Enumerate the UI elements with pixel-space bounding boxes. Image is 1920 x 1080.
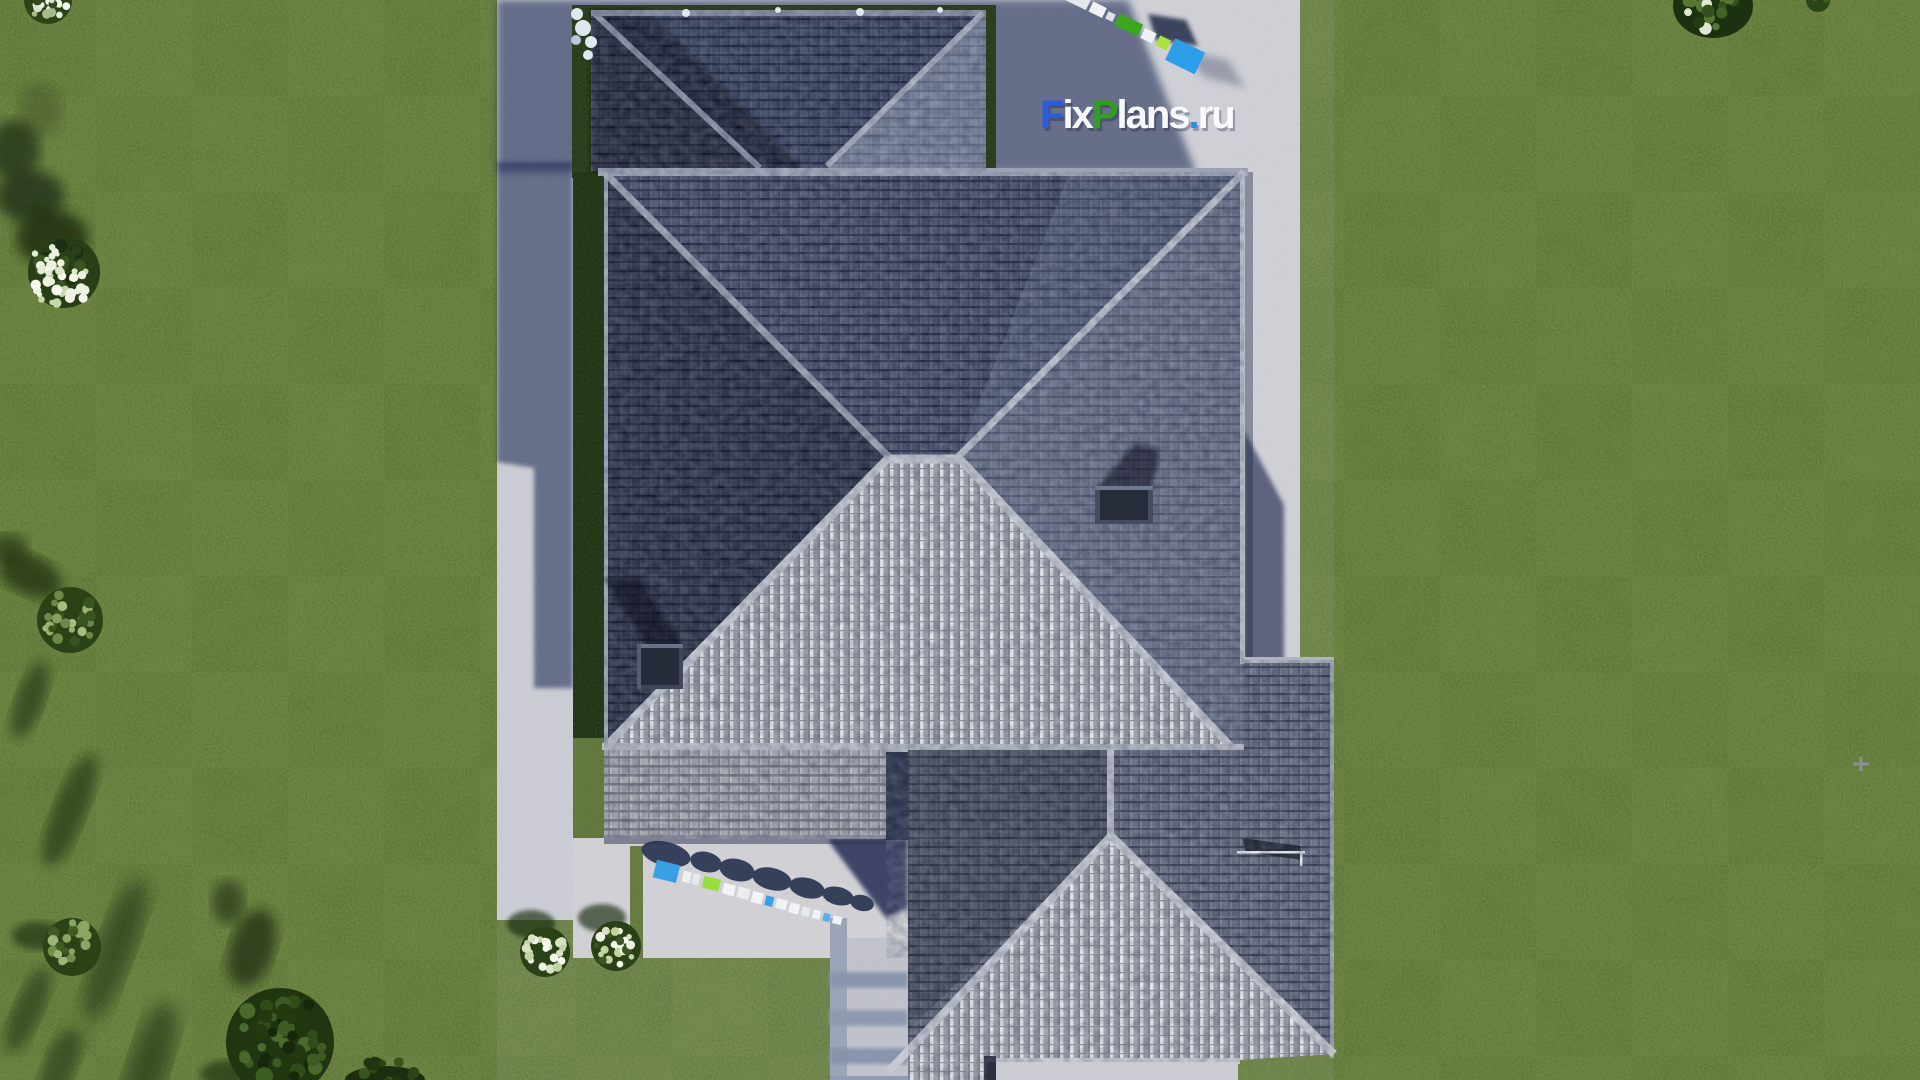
- svg-text:FixPlans.ru: FixPlans.ru: [1040, 93, 1234, 137]
